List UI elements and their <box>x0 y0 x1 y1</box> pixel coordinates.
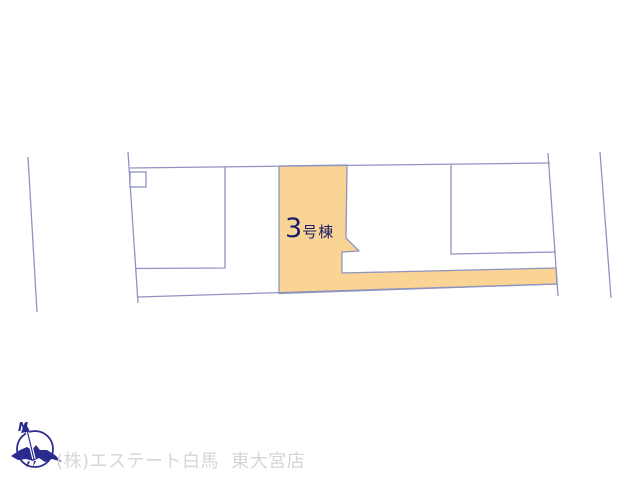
left-lot-annex-square <box>130 172 146 187</box>
boundary-line-far-left <box>28 157 37 312</box>
boundary-line-right-outer <box>600 152 611 298</box>
left-lot-outline <box>136 167 225 269</box>
building-label: 3号棟 <box>285 215 334 242</box>
building-suffix: 号棟 <box>302 223 334 241</box>
compass-n-label: N <box>18 420 28 434</box>
right-lot-outline <box>451 165 556 254</box>
logo-bird-silhouette-icon <box>11 445 62 462</box>
compass-logo: N <box>11 420 62 468</box>
building-number: 3 <box>285 213 302 244</box>
site-plan-page: N 3号棟 (株)エステート白馬 東大宮店 <box>0 0 640 480</box>
company-watermark: (株)エステート白馬 東大宮店 <box>56 447 305 473</box>
